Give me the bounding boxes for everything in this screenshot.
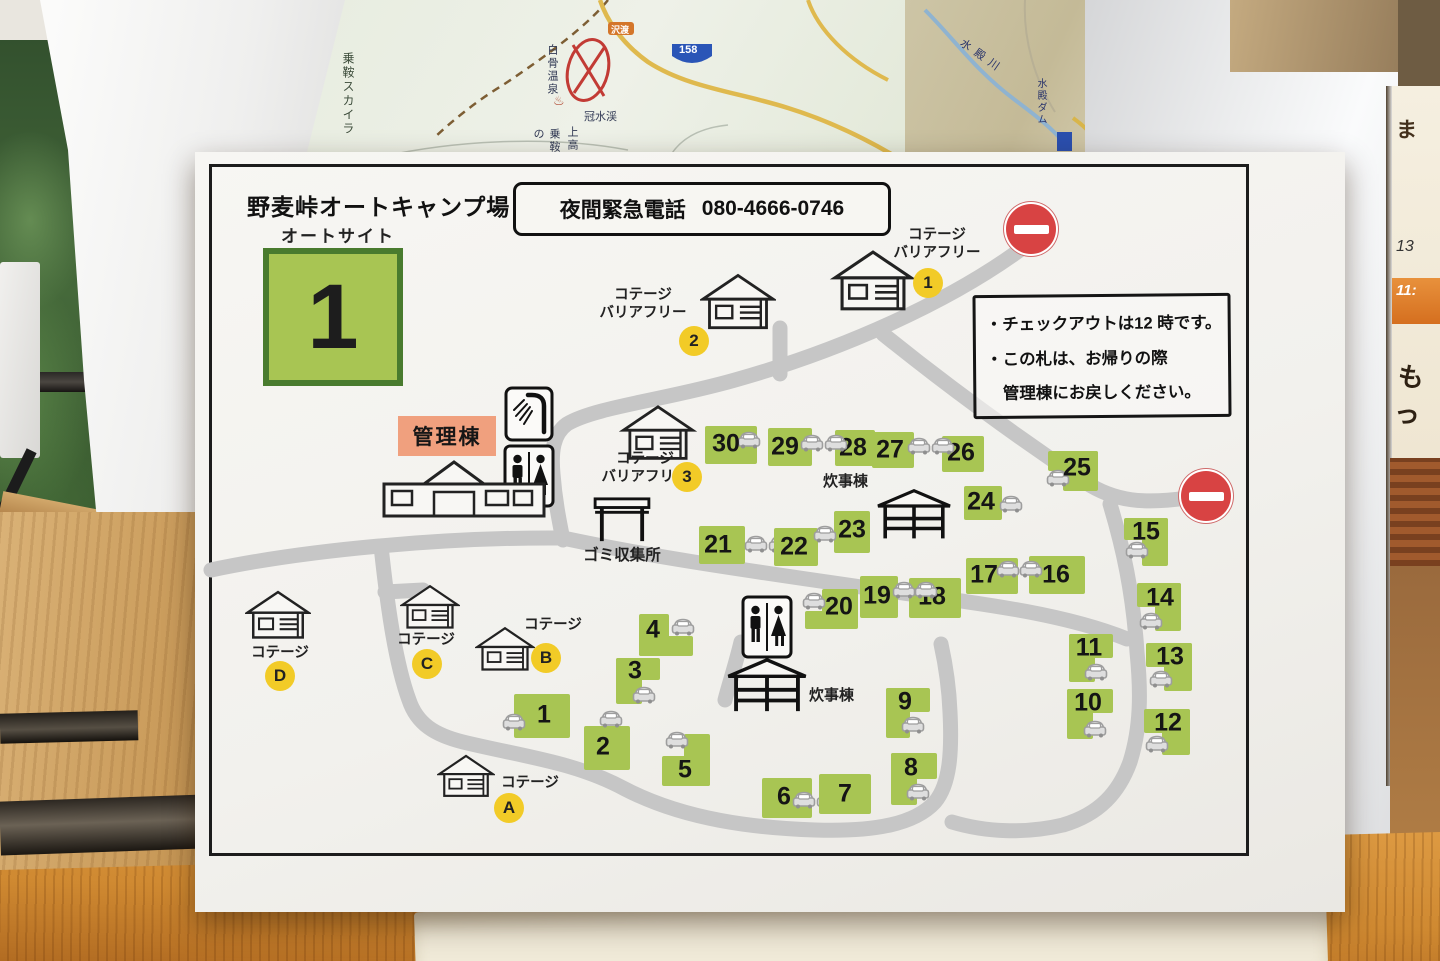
badge-cottage-A: A (494, 793, 524, 823)
car-icon (906, 782, 930, 801)
campsite-20-number: 20 (825, 593, 853, 622)
road-right-loop (952, 504, 1139, 831)
side-item-motsu: もっ (1392, 356, 1440, 434)
cottage-house-icon (400, 580, 460, 636)
notice-line: ・チェックアウトは12 時です。 (986, 306, 1220, 343)
campsite-9-number: 9 (898, 688, 912, 717)
side-wood-slats (1390, 458, 1440, 566)
car-icon (671, 617, 695, 636)
cottage-house-icon (437, 750, 495, 804)
cottage-house-icon (700, 272, 776, 334)
window-rail (0, 710, 138, 744)
campsite-2-number: 2 (596, 733, 610, 762)
car-icon (802, 591, 826, 610)
car-icon (901, 715, 925, 734)
campsite-23-number: 23 (838, 516, 866, 545)
campsite-15-number: 15 (1132, 518, 1160, 547)
campsite-11-number: 11 (1076, 634, 1102, 663)
car-icon (931, 436, 955, 455)
bg-label-route158: 158 (679, 44, 697, 56)
no-entry-sign-icon (1006, 204, 1056, 254)
site-card-number: 1 (307, 271, 358, 363)
notice-line: 管理棟にお戻しください。 (986, 375, 1220, 412)
side-item-11: 11: (1396, 282, 1417, 299)
badge-barrier-free-2: 2 (679, 326, 709, 356)
notice-box: ・チェックアウトは12 時です。 ・この札は、お帰りの際 管理棟にお戻しください… (972, 293, 1231, 419)
bg-label-kanmurisui: 冠水渓 (584, 108, 617, 124)
side-wood (1390, 566, 1440, 856)
window-rail (0, 794, 206, 855)
campsite-29-number: 29 (771, 433, 799, 462)
car-icon (744, 534, 768, 553)
campsite-21-number: 21 (704, 531, 732, 560)
car-icon (737, 430, 761, 449)
car-icon (824, 433, 848, 452)
bg-label-norikura-skyline: 乗鞍スカイラ (340, 52, 357, 136)
car-icon (599, 709, 623, 728)
kitchen-label: 炊事棟 (809, 684, 854, 705)
campsite-13-number: 13 (1156, 643, 1184, 672)
car-icon (1019, 559, 1043, 578)
emergency-phone-label: 夜間緊急電話 (560, 194, 686, 224)
side-menu-paper: ま 13 11: もっ (1392, 86, 1440, 458)
notice-line: ・この札は、お帰りの際 (986, 341, 1220, 378)
barrier-free-cottage-label: コテージバリアフリー (591, 286, 695, 322)
campsite-3-number: 3 (628, 657, 642, 686)
cottage-label: コテージ (495, 774, 565, 792)
badge-cottage-B: B (531, 643, 561, 673)
car-icon (800, 433, 824, 452)
autosite-label: オートサイト (281, 222, 395, 247)
badge-cottage-D: D (265, 661, 295, 691)
barrier-free-cottage-label: コテージバリアフリー (885, 226, 989, 262)
bg-label-kamikochi: 上高 (564, 126, 580, 152)
kitchen-label: 炊事棟 (823, 470, 868, 491)
campsite-24-number: 24 (967, 488, 995, 517)
cottage-house-icon (245, 586, 311, 646)
side-orange-band: 11: (1392, 278, 1440, 324)
campsite-25-number: 25 (1063, 454, 1091, 483)
campsite-17-number: 17 (970, 561, 998, 590)
admin-building-label: 管理棟 (398, 416, 496, 456)
garbage-station-icon (592, 496, 652, 544)
campsite-14-number: 14 (1146, 584, 1174, 613)
site-number-card: 1 (263, 248, 403, 386)
car-icon (892, 580, 916, 599)
car-icon (999, 494, 1023, 513)
no-entry-sign-icon (1181, 471, 1231, 521)
campsite-12-number: 12 (1154, 709, 1182, 738)
emergency-phone-box: 夜間緊急電話 080-4666-0746 (513, 182, 891, 236)
car-icon (632, 685, 656, 704)
campsite-10-number: 10 (1074, 689, 1102, 718)
car-icon (502, 712, 526, 731)
white-object (0, 262, 40, 458)
shower-icon (504, 386, 554, 442)
emergency-phone-number: 080-4666-0746 (702, 197, 844, 221)
car-icon (1083, 719, 1107, 738)
side-item-ma: ま (1396, 114, 1417, 144)
car-icon (1149, 669, 1173, 688)
side-item-13: 13 (1396, 238, 1414, 256)
badge-cottage-C: C (412, 649, 442, 679)
campsite-27-number: 27 (876, 436, 904, 465)
campsite-16-number: 16 (1042, 561, 1070, 590)
toilet-icon (741, 595, 793, 659)
cottage-label: コテージ (391, 631, 461, 649)
campsite-7-number: 7 (838, 780, 852, 809)
cottage-label: コテージ (518, 616, 588, 634)
campsite-1-number: 1 (537, 701, 551, 730)
car-icon (914, 580, 938, 599)
bg-label-shirahone-onsen: 白骨温泉 (544, 44, 560, 96)
campsite-8-number: 8 (904, 754, 918, 783)
photo-scene: ♨ 乗鞍スカイラ 白骨温泉 冠水渓 上高 乗鞍の 沢渡 158 水殿川 水殿ダム… (0, 0, 1440, 961)
admin-building-icon (382, 458, 546, 520)
car-icon (665, 730, 689, 749)
badge-barrier-free-3: 3 (672, 462, 702, 492)
kitchen-shelter-icon (874, 488, 954, 542)
car-icon (907, 436, 931, 455)
campsite-22-number: 22 (780, 533, 808, 562)
car-icon (996, 559, 1020, 578)
bg-label-midono-dam: 水殿ダム (1033, 78, 1048, 126)
badge-barrier-free-1: 1 (913, 268, 943, 298)
wall-corner (1398, 0, 1440, 95)
car-icon (1139, 611, 1163, 630)
campsite-30-number: 30 (712, 430, 740, 459)
cottage-label: コテージ (245, 644, 315, 662)
kitchen-shelter-icon (725, 657, 809, 715)
campsite-4-number: 4 (646, 616, 660, 645)
campsite-5-number: 5 (678, 756, 692, 785)
bg-label-sawando: 沢渡 (611, 23, 629, 36)
campsite-19-number: 19 (863, 582, 891, 611)
car-icon (792, 790, 816, 809)
page-title: 野麦峠オートキャンプ場 (247, 188, 510, 222)
campsite-6-number: 6 (777, 783, 791, 812)
car-icon (1084, 662, 1108, 681)
car-icon (813, 524, 837, 543)
background-road-map: ♨ 乗鞍スカイラ 白骨温泉 冠水渓 上高 乗鞍の 沢渡 158 (248, 0, 910, 162)
garbage-station-label: ゴミ収集所 (572, 546, 672, 565)
camp-map-sheet: 野麦峠オートキャンプ場 夜間緊急電話 080-4666-0746 オートサイト … (195, 152, 1345, 912)
